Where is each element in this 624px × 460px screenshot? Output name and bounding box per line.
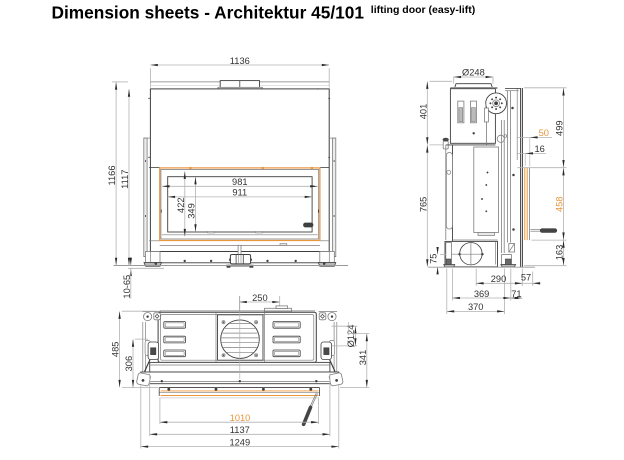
svg-text:349: 349	[187, 203, 197, 219]
svg-text:485: 485	[111, 342, 121, 358]
svg-text:1166: 1166	[107, 166, 117, 186]
svg-text:1010: 1010	[230, 413, 251, 423]
svg-text:1249: 1249	[229, 437, 250, 447]
svg-text:57: 57	[521, 273, 531, 283]
svg-text:422: 422	[176, 197, 186, 213]
svg-text:1117: 1117	[120, 170, 130, 189]
svg-text:Ø248: Ø248	[462, 68, 485, 78]
svg-text:306: 306	[124, 356, 134, 372]
svg-text:981: 981	[232, 177, 248, 187]
svg-text:163: 163	[555, 245, 565, 261]
svg-text:Dimension sheets - Architektur: Dimension sheets - Architektur 45/101	[52, 3, 365, 23]
svg-text:370: 370	[468, 302, 484, 312]
svg-text:341: 341	[358, 350, 368, 366]
svg-text:50: 50	[539, 128, 549, 138]
svg-text:250: 250	[252, 293, 268, 303]
svg-text:75: 75	[429, 254, 439, 264]
svg-text:16: 16	[535, 144, 545, 154]
svg-text:401: 401	[418, 104, 428, 120]
svg-text:369: 369	[474, 289, 490, 299]
svg-text:71: 71	[511, 289, 521, 299]
svg-text:1137: 1137	[230, 425, 250, 435]
svg-text:290: 290	[491, 274, 507, 284]
svg-text:458: 458	[555, 196, 565, 212]
svg-text:lifting door (easy-lift): lifting door (easy-lift)	[371, 4, 475, 16]
svg-text:911: 911	[232, 188, 247, 198]
svg-text:Ø124: Ø124	[346, 325, 356, 348]
svg-text:499: 499	[555, 120, 565, 136]
svg-text:1136: 1136	[230, 56, 250, 66]
svg-text:765: 765	[418, 197, 428, 213]
svg-text:10-65: 10-65	[122, 275, 132, 299]
